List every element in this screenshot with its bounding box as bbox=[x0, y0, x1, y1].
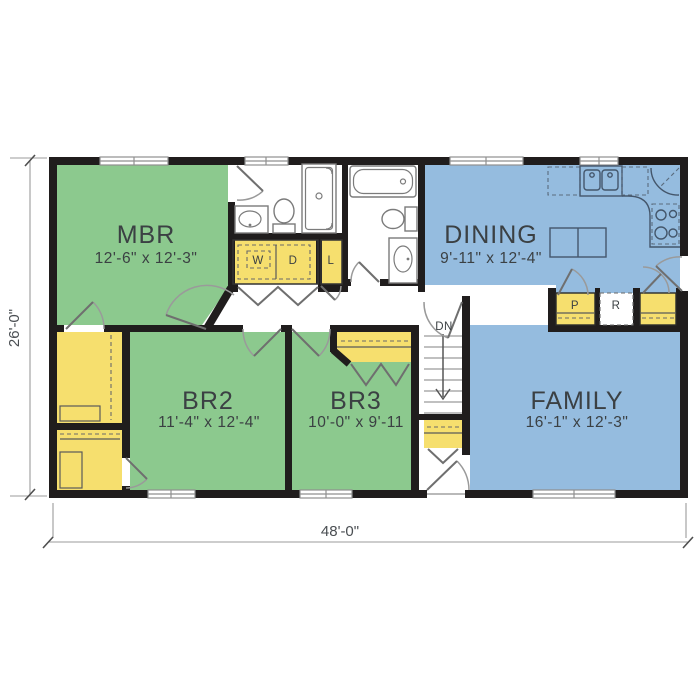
window-mbath bbox=[245, 157, 288, 165]
mbr-closet bbox=[57, 332, 122, 423]
br2-label: BR2 bbox=[182, 387, 234, 415]
window-mbr bbox=[100, 157, 168, 165]
linen-label: L bbox=[328, 255, 335, 267]
refrigerator-label: R bbox=[612, 300, 621, 312]
br3-label: BR3 bbox=[330, 387, 382, 415]
passage-floor bbox=[470, 325, 548, 332]
br3-door-opening bbox=[292, 325, 330, 332]
dining-dims: 9'-11" x 12'-4" bbox=[440, 250, 542, 267]
hbath-toilet-tank bbox=[405, 207, 417, 231]
br2-door-opening bbox=[243, 325, 281, 332]
window-kitchen bbox=[580, 157, 618, 165]
pantry-label: P bbox=[571, 300, 579, 312]
side-door-opening bbox=[680, 256, 688, 291]
br2-dims: 11'-4" x 12'-4" bbox=[158, 414, 260, 431]
floorplan-drawing: MBR 12'-6" x 12'-3" DINING 9'-11" x 12'-… bbox=[0, 0, 700, 700]
height-dimension: 26'-0" bbox=[6, 309, 23, 347]
mbath-toilet-bowl bbox=[274, 199, 294, 223]
width-dimension: 48'-0" bbox=[321, 523, 359, 540]
family-dims: 16'-1" x 12'-3" bbox=[526, 414, 629, 431]
stair-closet bbox=[424, 420, 462, 448]
mbath-toilet-tank bbox=[273, 224, 295, 233]
window-family bbox=[533, 490, 615, 498]
mbath-vanity bbox=[235, 206, 268, 233]
mbr-dims: 12'-6" x 12'-3" bbox=[95, 250, 198, 267]
washer-label: W bbox=[252, 255, 263, 267]
family-label: FAMILY bbox=[530, 387, 623, 415]
window-br3 bbox=[300, 490, 352, 498]
window-dining bbox=[450, 157, 523, 165]
mbath-door-opening bbox=[228, 165, 235, 202]
hbath-vanity bbox=[389, 238, 417, 283]
dining-label: DINING bbox=[444, 221, 538, 249]
stairs-down-label: DN bbox=[435, 321, 453, 333]
coat-closet bbox=[640, 293, 676, 325]
br3-dims: 10'-0" x 9'-11 bbox=[308, 414, 404, 431]
window-br2 bbox=[148, 490, 195, 498]
mbr-label: MBR bbox=[117, 221, 176, 249]
dryer-label: D bbox=[289, 255, 298, 267]
hbath-toilet-bowl bbox=[382, 210, 404, 229]
floorplan-page: MBR 12'-6" x 12'-3" DINING 9'-11" x 12'-… bbox=[0, 0, 700, 700]
